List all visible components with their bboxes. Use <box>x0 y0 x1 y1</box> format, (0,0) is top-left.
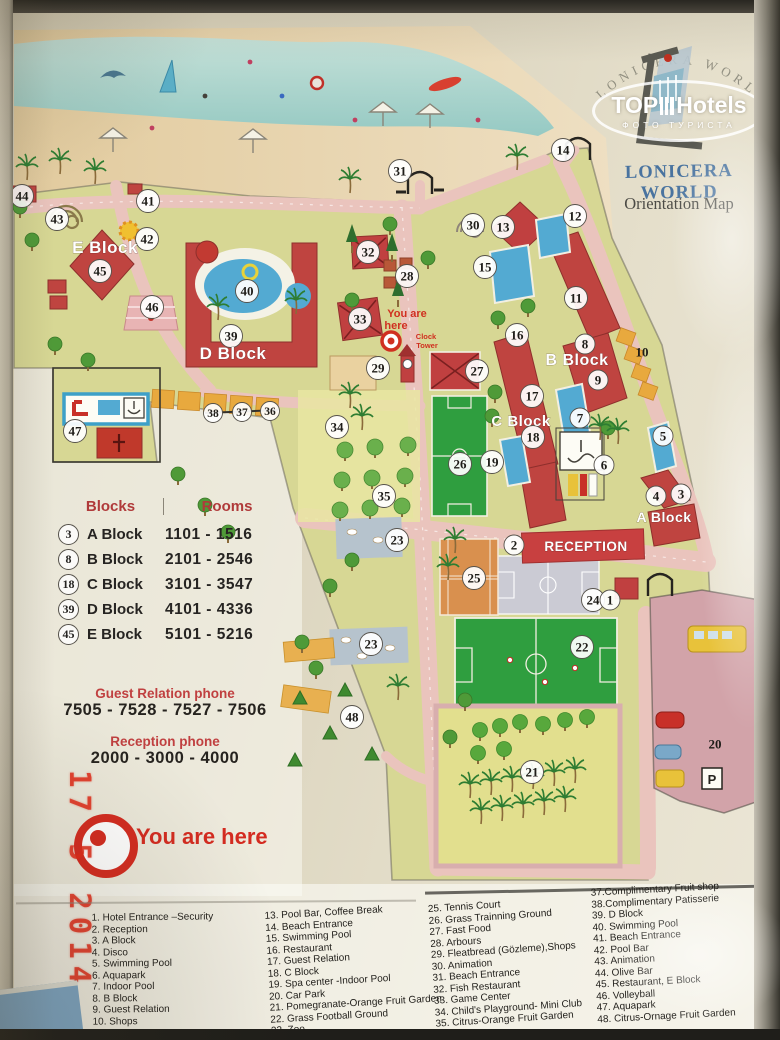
map-label: A Block <box>636 509 691 525</box>
fruit-tree <box>513 715 528 730</box>
map-badge-20: 20 <box>709 737 722 752</box>
block-number-badge: 8 <box>58 549 79 570</box>
map-badge-10: 10 <box>636 345 649 360</box>
citrus-tree <box>394 498 410 514</box>
you-are-here-label: You are here <box>136 824 268 850</box>
building-icon <box>660 97 674 115</box>
map-badge-9: 9 <box>588 370 608 390</box>
svg-text:17: 17 <box>526 389 540 404</box>
fruit-garden <box>436 706 620 866</box>
svg-text:33: 33 <box>354 312 368 327</box>
tree <box>309 661 323 675</box>
svg-text:35: 35 <box>378 489 392 504</box>
map-badge-1: 1 <box>600 590 620 610</box>
tree <box>25 233 39 247</box>
block-row-d-block: 39D Block4101 - 4336 <box>58 597 290 622</box>
block-row-a-block: 3A Block1101 - 1516 <box>58 522 290 547</box>
map-badge-37: 37 <box>233 403 252 422</box>
map-badge-27: 27 <box>466 360 489 383</box>
block-row-e-block: 45E Block5101 - 5216 <box>58 622 290 647</box>
citrus-tree <box>337 442 353 458</box>
map-you-are-here-marker <box>382 332 400 350</box>
tree <box>443 730 457 744</box>
rooms-header: Rooms <box>164 498 290 515</box>
block-number-badge: 3 <box>58 524 79 545</box>
svg-text:7: 7 <box>577 411 584 426</box>
tree <box>48 337 62 351</box>
fruit-tree <box>497 742 512 757</box>
svg-text:43: 43 <box>51 212 65 227</box>
watermark-top-label: TOP <box>611 92 658 119</box>
map-badge-34: 34 <box>326 416 349 439</box>
tree <box>345 293 359 307</box>
blocks-header: Blocks <box>58 498 164 515</box>
reception-phone-numbers: 2000 - 3000 - 4000 <box>40 749 290 768</box>
map-badge-43: 43 <box>46 208 69 231</box>
map-badge-26: 26 <box>449 453 472 476</box>
block-number-badge: 45 <box>58 624 79 645</box>
svg-text:45: 45 <box>94 264 108 279</box>
map-badge-13: 13 <box>492 216 515 239</box>
svg-text:39: 39 <box>225 329 239 344</box>
svg-text:34: 34 <box>331 420 345 435</box>
bush <box>338 683 352 696</box>
svg-text:46: 46 <box>146 300 160 315</box>
bush <box>323 726 337 739</box>
tree <box>488 385 502 399</box>
map-badge-36: 36 <box>261 402 280 421</box>
map-label: Tower <box>416 341 438 350</box>
block-rooms-range: 3101 - 3547 <box>165 576 253 594</box>
svg-text:38: 38 <box>207 408 219 420</box>
svg-text:4: 4 <box>653 489 660 504</box>
map-badge-48: 48 <box>341 706 364 729</box>
tree <box>81 353 95 367</box>
block-rooms-range: 2101 - 2546 <box>165 551 253 569</box>
svg-text:36: 36 <box>264 406 276 418</box>
svg-text:5: 5 <box>660 429 667 444</box>
svg-text:6: 6 <box>601 458 608 473</box>
map-label: here <box>384 320 407 332</box>
watermark-subtitle: ФОТО ТУРИСТА <box>622 120 736 130</box>
fruit-tree <box>558 713 573 728</box>
map-badge-41: 41 <box>137 190 160 213</box>
svg-text:22: 22 <box>576 640 589 655</box>
map-badge-33: 33 <box>349 308 372 331</box>
svg-text:10: 10 <box>636 345 649 360</box>
map-badge-40: 40 <box>236 280 259 303</box>
map-badge-28: 28 <box>396 265 419 288</box>
svg-text:20: 20 <box>709 737 722 752</box>
map-badge-31: 31 <box>389 160 412 183</box>
map-badge-35: 35 <box>373 485 396 508</box>
svg-text:42: 42 <box>141 232 154 247</box>
tree-trunk <box>351 246 353 253</box>
legend-column-1: 1. Hotel Entrance –Security2. Reception3… <box>91 911 214 1027</box>
tree <box>421 251 435 265</box>
svg-text:24: 24 <box>587 593 601 608</box>
red-car <box>656 712 684 728</box>
map-label: C Block <box>491 413 551 430</box>
svg-text:44: 44 <box>16 189 30 204</box>
map-badge-45: 45 <box>89 260 112 283</box>
fruit-tree <box>536 717 551 732</box>
bush <box>288 753 302 766</box>
map-badge-25: 25 <box>463 567 486 590</box>
map-subtitle: Orientation Map <box>588 194 770 214</box>
tree <box>491 311 505 325</box>
frame-top <box>0 0 780 13</box>
svg-text:16: 16 <box>511 328 525 343</box>
map-badge-47: 47 <box>64 420 87 443</box>
frame-left <box>0 0 13 1040</box>
block-name: E Block <box>87 626 165 643</box>
map-badge-44: 44 <box>11 185 34 208</box>
tree <box>521 299 535 313</box>
svg-text:14: 14 <box>557 143 571 158</box>
svg-text:2: 2 <box>511 538 518 553</box>
guest-relation-phone-label: Guest Relation phone <box>40 686 290 701</box>
block-row-c-block: 18C Block3101 - 3547 <box>58 572 290 597</box>
map-label: You are <box>387 308 427 320</box>
svg-text:1: 1 <box>607 593 614 608</box>
map-badge-11: 11 <box>565 287 588 310</box>
van <box>656 770 684 787</box>
legend-column-4: 37.Complimentary Fruit shop38.Compliment… <box>590 880 735 1025</box>
photo-of-resort-map-sign: 4443414245464039473837363534332932283130… <box>0 0 780 1040</box>
svg-text:11: 11 <box>570 291 582 306</box>
tree <box>171 467 185 481</box>
map-badge-4: 4 <box>646 486 666 506</box>
fruit-tree <box>473 723 488 738</box>
phone-info: Guest Relation phone 7505 - 7528 - 7527 … <box>40 686 290 782</box>
tree-trunk <box>397 300 399 307</box>
map-badge-12: 12 <box>564 205 587 228</box>
map-badge-32: 32 <box>357 241 380 264</box>
svg-text:40: 40 <box>241 284 254 299</box>
block-number-badge: 39 <box>58 599 79 620</box>
svg-text:9: 9 <box>595 373 602 388</box>
watermark-hotels-label: Hotels <box>676 92 746 119</box>
map-badge-16: 16 <box>506 324 529 347</box>
svg-text:37: 37 <box>236 407 248 419</box>
tree <box>295 635 309 649</box>
svg-text:25: 25 <box>468 571 482 586</box>
map-badge-15: 15 <box>474 256 497 279</box>
svg-text:23: 23 <box>391 533 405 548</box>
blue-car <box>655 745 681 759</box>
beach-ball <box>311 77 323 89</box>
map-badge-38: 38 <box>204 404 223 423</box>
tree <box>345 553 359 567</box>
svg-text:21: 21 <box>526 765 539 780</box>
svg-text:23: 23 <box>365 637 379 652</box>
map-label: RECEPTION <box>544 539 627 554</box>
frame-bottom <box>0 1029 780 1040</box>
map-badge-23: 23 <box>360 633 383 656</box>
svg-text:27: 27 <box>471 364 485 379</box>
hotel-logo-block: LONICERA WORLD TOPHotels ФОТО ТУРИСТА LO… <box>588 16 770 221</box>
map-badge-3: 3 <box>671 484 691 504</box>
map-badge-2: 2 <box>504 535 524 555</box>
fruit-tree <box>493 719 508 734</box>
svg-text:8: 8 <box>582 337 589 352</box>
tree <box>323 579 337 593</box>
legend-column-3: 25. Tennis Court26. Grass Trainning Grou… <box>428 894 584 1040</box>
legend-item: 10. Shops <box>92 1015 214 1028</box>
svg-text:18: 18 <box>527 430 541 445</box>
block-rooms-range: 5101 - 5216 <box>165 626 253 644</box>
fruit-tree <box>580 710 595 725</box>
citrus-tree <box>334 472 350 488</box>
reception-phone-label: Reception phone <box>40 734 290 749</box>
guest-relation-phone-numbers: 7505 - 7528 - 7527 - 7506 <box>40 701 290 720</box>
map-badge-14: 14 <box>552 139 575 162</box>
svg-text:31: 31 <box>394 164 407 179</box>
block-name: B Block <box>87 551 165 568</box>
map-badge-42: 42 <box>136 228 159 251</box>
map-label: Clock <box>416 332 437 341</box>
map-badge-17: 17 <box>521 385 544 408</box>
svg-text:12: 12 <box>569 209 582 224</box>
block-row-b-block: 8B Block2101 - 2546 <box>58 547 290 572</box>
citrus-tree <box>332 502 348 518</box>
svg-text:29: 29 <box>372 361 386 376</box>
block-rooms-range: 4101 - 4336 <box>165 601 253 619</box>
citrus-tree <box>397 468 413 484</box>
tree-trunk <box>391 255 393 262</box>
citrus-tree <box>400 437 416 453</box>
map-badge-21: 21 <box>521 761 544 784</box>
block-number-badge: 18 <box>58 574 79 595</box>
map-badge-7: 7 <box>570 408 590 428</box>
block-name: D Block <box>87 601 165 618</box>
svg-text:48: 48 <box>346 710 360 725</box>
fruit-tree <box>471 746 486 761</box>
svg-text:19: 19 <box>486 455 500 470</box>
svg-text:30: 30 <box>467 218 480 233</box>
map-label: E Block <box>72 238 138 257</box>
svg-text:26: 26 <box>454 457 468 472</box>
block-name: C Block <box>87 576 165 593</box>
map-badge-22: 22 <box>571 636 594 659</box>
svg-text:28: 28 <box>401 269 415 284</box>
map-badge-19: 19 <box>481 451 504 474</box>
football-ground <box>455 618 617 710</box>
svg-text:32: 32 <box>362 245 375 260</box>
tree <box>458 693 472 707</box>
svg-text:15: 15 <box>479 260 493 275</box>
bush <box>365 747 379 760</box>
map-label: B Block <box>545 352 608 369</box>
svg-text:47: 47 <box>69 424 83 439</box>
map-badge-46: 46 <box>141 296 164 319</box>
you-are-here-key: You are here <box>60 806 320 876</box>
svg-text:41: 41 <box>142 194 155 209</box>
map-badge-29: 29 <box>367 357 390 380</box>
map-badge-8: 8 <box>575 334 595 354</box>
frame-right <box>754 0 780 1040</box>
legend-item: 1. Hotel Entrance –Security <box>91 911 213 924</box>
map-badge-23: 23 <box>386 529 409 552</box>
block-rooms-range: 1101 - 1516 <box>165 526 252 544</box>
tree <box>383 217 397 231</box>
svg-text:13: 13 <box>497 220 511 235</box>
map-label: P <box>708 772 717 787</box>
map-badge-30: 30 <box>462 214 485 237</box>
block-name: A Block <box>87 526 165 543</box>
citrus-tree <box>364 470 380 486</box>
svg-text:3: 3 <box>678 487 685 502</box>
map-badge-5: 5 <box>653 426 673 446</box>
legend-column-2: 13. Pool Bar, Coffee Break14. Beach Entr… <box>264 901 444 1040</box>
map-label: D Block <box>200 344 267 363</box>
tophotels-watermark: TOPHotels ФОТО ТУРИСТА <box>592 80 766 142</box>
blocks-rooms-table: Blocks Rooms 3A Block1101 - 15168B Block… <box>58 498 290 647</box>
map-badge-6: 6 <box>594 455 614 475</box>
citrus-tree <box>367 439 383 455</box>
